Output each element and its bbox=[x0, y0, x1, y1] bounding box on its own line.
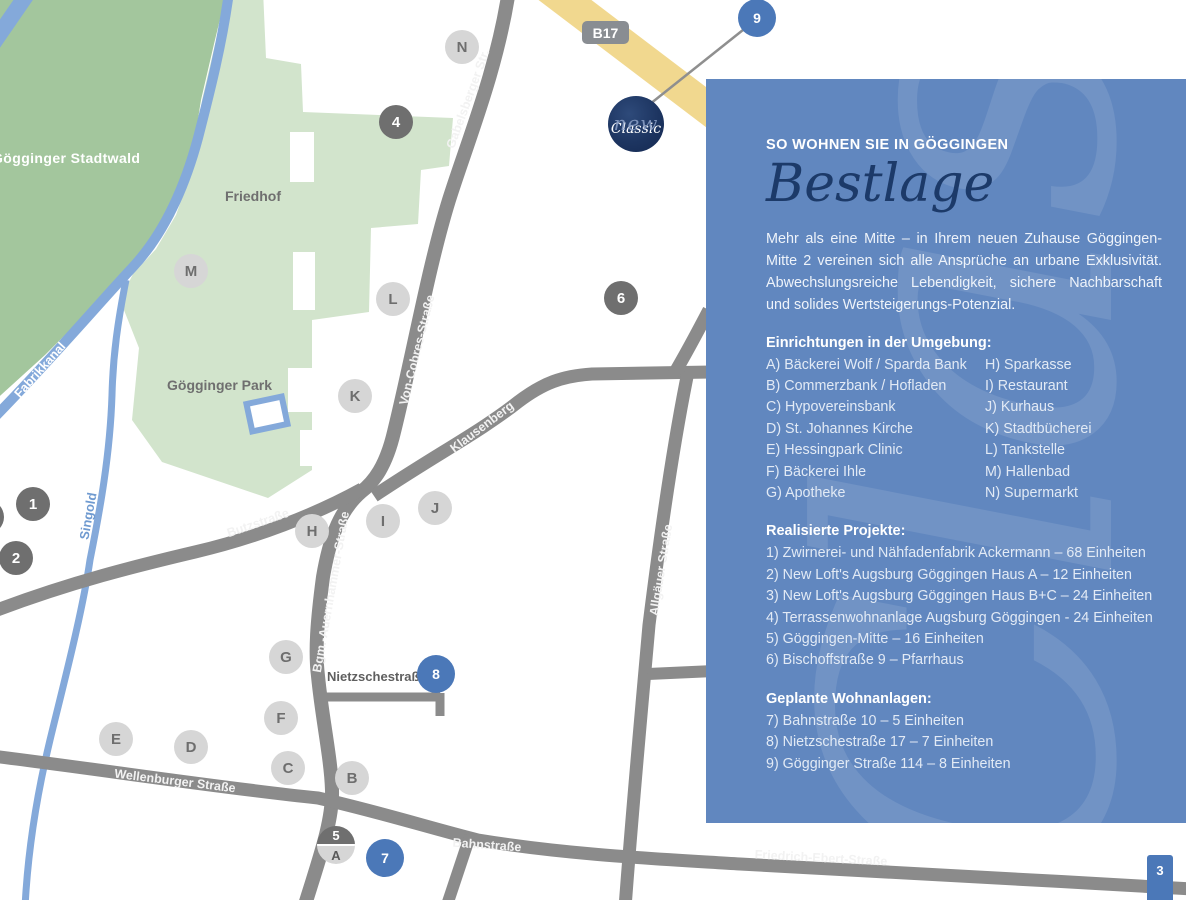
facility-item: H) Sparkasse bbox=[985, 355, 1092, 376]
road-side-street bbox=[446, 836, 470, 900]
route-badge-b17: B17 bbox=[582, 21, 629, 44]
map-marker-8: 8 bbox=[417, 655, 455, 693]
map-marker-F: F bbox=[264, 701, 298, 735]
map-marker-6: 6 bbox=[604, 281, 638, 315]
panel-intro: Mehr als eine Mitte – in Ihrem neuen Zuh… bbox=[766, 228, 1162, 316]
road-butzstrasse bbox=[0, 489, 362, 612]
planned-item: 9) Gögginger Straße 114 – 8 Einheiten bbox=[766, 754, 1162, 775]
map-marker-I: I bbox=[366, 504, 400, 538]
road-northeast-bend bbox=[674, 310, 709, 374]
planned-item: 8) Nietzschestraße 17 – 7 Einheiten bbox=[766, 732, 1162, 753]
project-item: 2) New Loft's Augsburg Göggingen Haus A … bbox=[766, 565, 1162, 586]
building-notch bbox=[288, 368, 316, 412]
map-marker-7: 7 bbox=[366, 839, 404, 877]
facility-item: B) Commerzbank / Hofladen bbox=[766, 376, 985, 397]
map-marker-2: 2 bbox=[0, 541, 33, 575]
map-marker-5A: 5 A bbox=[317, 826, 355, 864]
facility-item: D) St. Johannes Kirche bbox=[766, 419, 985, 440]
projects-section: Realisierte Projekte: 1) Zwirnerei- und … bbox=[766, 523, 1162, 671]
facility-item: A) Bäckerei Wolf / Sparda Bank bbox=[766, 355, 985, 376]
planned-title: Geplante Wohnanlagen: bbox=[766, 691, 1162, 707]
road-nietzschestrasse bbox=[324, 693, 440, 716]
facility-item: J) Kurhaus bbox=[985, 397, 1092, 418]
facilities-title: Einrichtungen in der Umgebung: bbox=[766, 335, 1162, 351]
project-item: 4) Terrassenwohnanlage Augsburg Gögginge… bbox=[766, 608, 1162, 629]
project-item: 3) New Loft's Augsburg Göggingen Haus B+… bbox=[766, 586, 1162, 607]
map-marker-L: L bbox=[376, 282, 410, 316]
map-marker-G: G bbox=[269, 640, 303, 674]
road-allgaeuer-branch bbox=[648, 671, 714, 674]
map-marker-K: K bbox=[338, 379, 372, 413]
panel-title: Bestlage bbox=[766, 157, 1162, 212]
building-notch bbox=[293, 252, 315, 310]
building-notch bbox=[300, 430, 316, 466]
brochure-map-page: Gögginger Stadtwald Friedhof Gögginger P… bbox=[0, 0, 1186, 900]
info-panel: Classic SO WOHNEN SIE IN GÖGGINGEN Bestl… bbox=[706, 79, 1186, 823]
planned-section: Geplante Wohnanlagen: 7) Bahnstraße 10 –… bbox=[766, 691, 1162, 775]
map-marker-9: 9 bbox=[738, 0, 776, 37]
new-classic-logo: new Classic bbox=[608, 96, 664, 152]
road-allgaeuer bbox=[625, 372, 688, 900]
map-marker-J: J bbox=[418, 491, 452, 525]
page-number-badge: 3 bbox=[1147, 855, 1173, 900]
map-marker-B: B bbox=[335, 761, 369, 795]
park-pond bbox=[246, 397, 287, 432]
map-marker-1: 1 bbox=[16, 487, 50, 521]
facility-item: E) Hessingpark Clinic bbox=[766, 440, 985, 461]
facility-item: L) Tankstelle bbox=[985, 440, 1092, 461]
map-marker-N: N bbox=[445, 30, 479, 64]
facility-item: N) Supermarkt bbox=[985, 483, 1092, 504]
map-marker-H: H bbox=[295, 514, 329, 548]
logo-text-new: new bbox=[614, 111, 659, 135]
facility-item: C) Hypovereinsbank bbox=[766, 397, 985, 418]
project-item: 1) Zwirnerei- und Nähfadenfabrik Ackerma… bbox=[766, 543, 1162, 564]
facility-item: M) Hallenbad bbox=[985, 462, 1092, 483]
facility-item: G) Apotheke bbox=[766, 483, 985, 504]
road-klausenberg bbox=[374, 372, 712, 496]
facility-item: F) Bäckerei Ihle bbox=[766, 462, 985, 483]
panel-kicker: SO WOHNEN SIE IN GÖGGINGEN bbox=[766, 137, 1162, 153]
map-marker-C: C bbox=[271, 751, 305, 785]
map-marker-M: M bbox=[174, 254, 208, 288]
projects-title: Realisierte Projekte: bbox=[766, 523, 1162, 539]
map-marker-4: 4 bbox=[379, 105, 413, 139]
map-marker-D: D bbox=[174, 730, 208, 764]
project-item: 6) Bischoffstraße 9 – Pfarrhaus bbox=[766, 650, 1162, 671]
planned-item: 7) Bahnstraße 10 – 5 Einheiten bbox=[766, 711, 1162, 732]
facilities-section: Einrichtungen in der Umgebung: A) Bäcker… bbox=[766, 335, 1162, 505]
building-notch bbox=[290, 132, 314, 182]
facility-item: K) Stadtbücherei bbox=[985, 419, 1092, 440]
map-marker-E: E bbox=[99, 722, 133, 756]
project-item: 5) Göggingen-Mitte – 16 Einheiten bbox=[766, 629, 1162, 650]
facility-item: I) Restaurant bbox=[985, 376, 1092, 397]
